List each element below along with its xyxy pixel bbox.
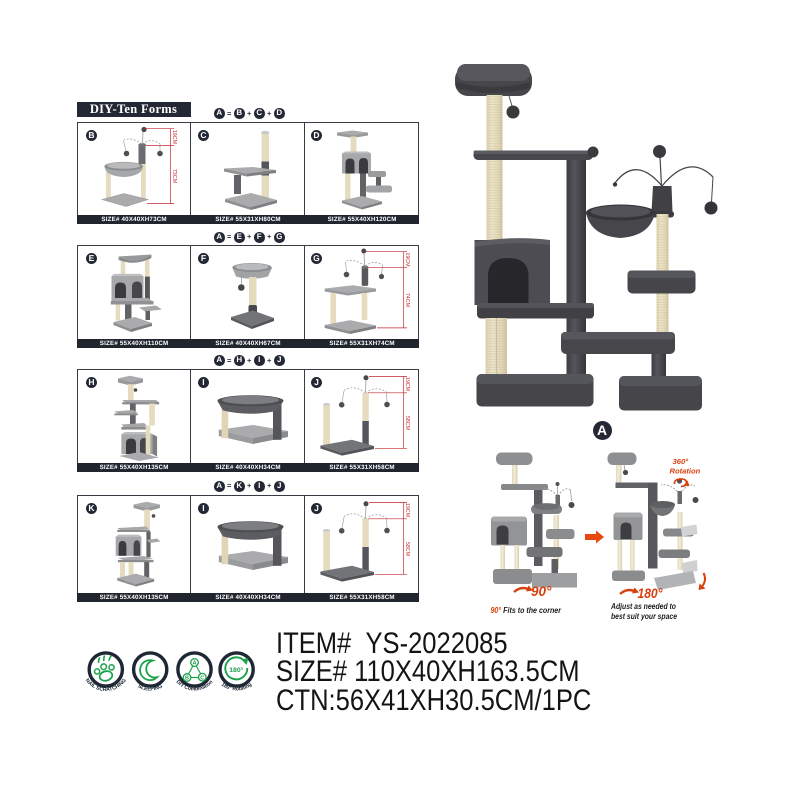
svg-text:74CM: 74CM <box>404 293 410 308</box>
svg-text:19CM: 19CM <box>404 252 410 267</box>
svg-text:58CM: 58CM <box>404 416 410 431</box>
svg-text:Adjust as needed to: Adjust as needed to <box>610 602 676 611</box>
svg-text:best suit your space: best suit your space <box>611 612 678 621</box>
svg-text:180°: 180° <box>638 586 664 601</box>
svg-text:B: B <box>185 676 189 682</box>
svg-text:58CM: 58CM <box>404 542 410 557</box>
svg-text:19CM: 19CM <box>404 377 410 392</box>
svg-text:C: C <box>200 675 204 681</box>
svg-text:19CM: 19CM <box>170 129 176 144</box>
svg-text:90°: 90° <box>531 584 552 599</box>
svg-text:360°: 360° <box>673 457 690 466</box>
svg-text:90° Fits to the corner: 90° Fits to the corner <box>491 606 562 615</box>
svg-text:19CM: 19CM <box>404 503 410 518</box>
svg-text:180° Rotating: 180° Rotating <box>220 682 253 693</box>
svg-text:73CM: 73CM <box>170 168 176 183</box>
svg-text:A: A <box>192 661 196 667</box>
svg-text:Rotation: Rotation <box>670 467 701 476</box>
svg-text:180°: 180° <box>229 666 243 674</box>
